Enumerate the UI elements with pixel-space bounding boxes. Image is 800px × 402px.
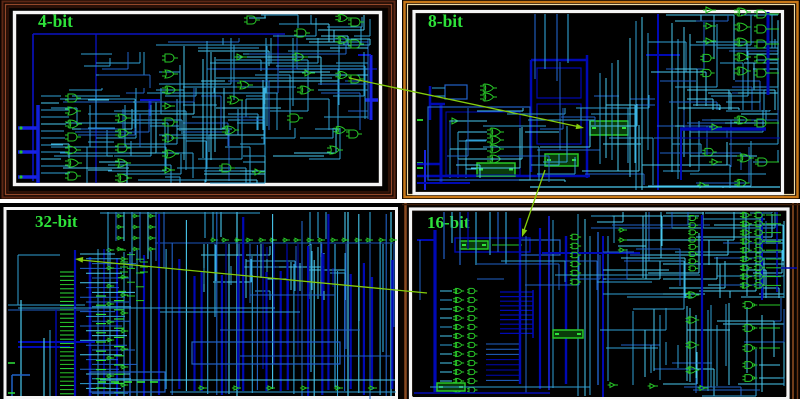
- svg-text:4-bit: 4-bit: [38, 11, 73, 31]
- svg-text:16-bit: 16-bit: [427, 213, 470, 232]
- svg-text:32-bit: 32-bit: [35, 212, 78, 231]
- svg-text:8-bit: 8-bit: [428, 11, 463, 31]
